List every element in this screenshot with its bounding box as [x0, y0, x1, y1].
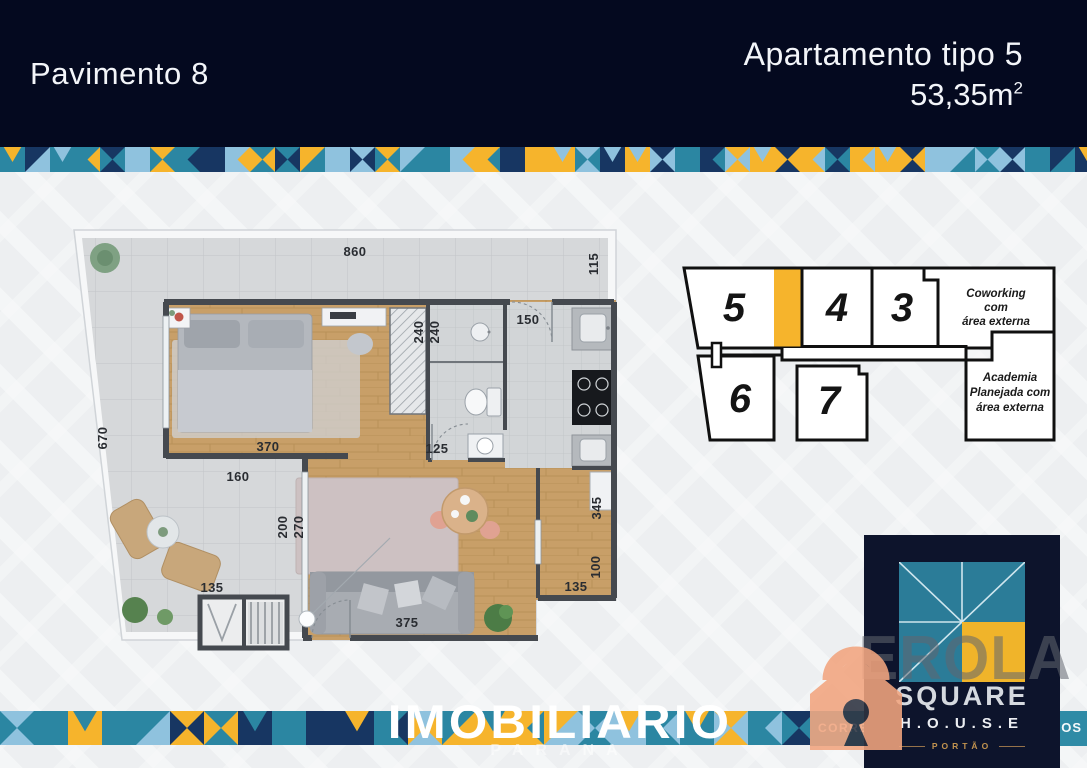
kitchen-counter-top — [572, 308, 614, 350]
dimension-label: 135 — [201, 580, 224, 595]
dimension-label: 125 — [426, 441, 449, 456]
header-bar: Pavimento 8 Apartamento tipo 5 53,35m2 — [0, 0, 1087, 147]
dimension-label: 370 — [257, 439, 280, 454]
dimension-label: 375 — [396, 615, 419, 630]
logo-city: PORTÃO — [932, 741, 992, 751]
unit-title: Apartamento tipo 5 — [744, 36, 1023, 73]
svg-text:Coworking: Coworking — [966, 288, 1025, 300]
dimension-label: 135 — [565, 579, 588, 594]
dimension-label: 345 — [589, 497, 604, 520]
dimension-label: 160 — [227, 469, 250, 484]
svg-text:área externa: área externa — [976, 402, 1044, 414]
mosaic-strip-top — [0, 147, 1087, 172]
unit-info: Apartamento tipo 5 53,35m2 — [744, 36, 1023, 113]
svg-text:com: com — [984, 302, 1008, 314]
key-plan-highlight — [774, 270, 801, 347]
divider-line — [999, 746, 1025, 747]
dimension-label: 670 — [95, 427, 110, 450]
bedroom-window — [163, 316, 169, 428]
balcony-glass-door — [535, 520, 541, 564]
kitchen-counter-bottom — [572, 435, 614, 466]
dimension-label: 150 — [517, 312, 540, 327]
flyer-page: Pavimento 8 Apartamento tipo 5 53,35m2 — [0, 0, 1087, 768]
elevator-shaft — [200, 597, 287, 648]
banner-text-right: OS — [1061, 720, 1082, 735]
stove — [572, 370, 614, 425]
dimension-label: 270 — [291, 516, 306, 539]
terrace-plant-top-inner — [97, 250, 113, 266]
key-plan-unit-7: 7 — [818, 379, 842, 423]
toilet — [465, 388, 501, 416]
house-lock-icon — [800, 616, 912, 750]
living-glass-door — [302, 472, 308, 620]
dimension-label: 240 — [411, 321, 426, 344]
watermark-brand: IMOBILIARIO — [235, 694, 886, 749]
unit-area: 53,35m2 — [744, 77, 1023, 113]
bed — [178, 314, 312, 432]
key-plan-corridor — [782, 347, 966, 361]
key-plan-unit-3: 3 — [891, 286, 913, 330]
dimension-label: 240 — [427, 321, 442, 344]
bedside-table — [168, 308, 190, 328]
key-plan-unit-6: 6 — [729, 377, 752, 421]
key-plan-door-icon — [712, 343, 721, 367]
dimension-label: 200 — [275, 516, 290, 539]
key-plan-unit-4: 4 — [825, 286, 848, 330]
svg-text:Planejada com: Planejada com — [970, 387, 1051, 399]
bathroom-vanity — [468, 434, 503, 458]
dimension-label: 100 — [588, 556, 603, 579]
stairs-icon — [248, 602, 283, 644]
watermark-brand-sub: PARANA — [250, 742, 870, 760]
dimension-label: 860 — [344, 244, 367, 259]
dimension-label: 115 — [586, 253, 601, 275]
key-plan-unit-5: 5 — [723, 286, 746, 330]
floor-plan: 860 115 670 240 240 150 125 370 160 200 … — [60, 220, 665, 657]
svg-text:área externa: área externa — [962, 316, 1030, 328]
svg-text:Academia: Academia — [982, 372, 1038, 384]
floor-label: Pavimento 8 — [30, 56, 209, 92]
key-plan: 5 4 3 6 7 Coworking com área externa Aca… — [676, 260, 1061, 455]
